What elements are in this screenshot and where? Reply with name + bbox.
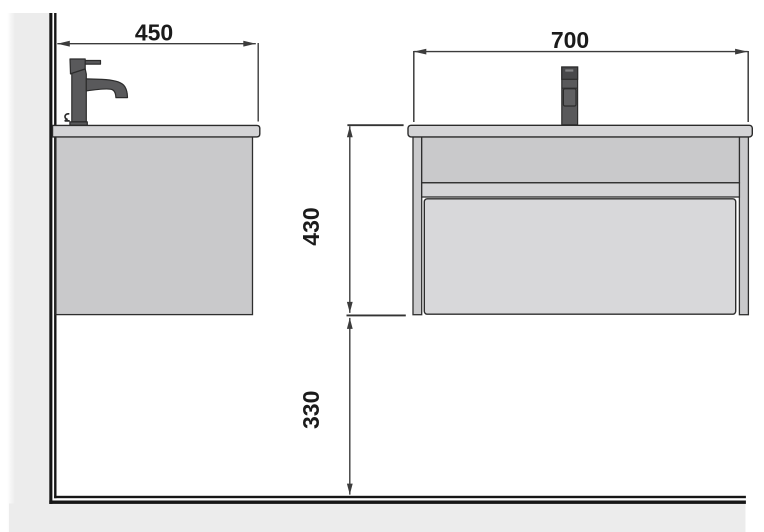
svg-text:450: 450 [135, 20, 173, 46]
svg-text:430: 430 [298, 207, 324, 245]
svg-text:330: 330 [298, 391, 324, 429]
svg-text:700: 700 [551, 27, 589, 53]
